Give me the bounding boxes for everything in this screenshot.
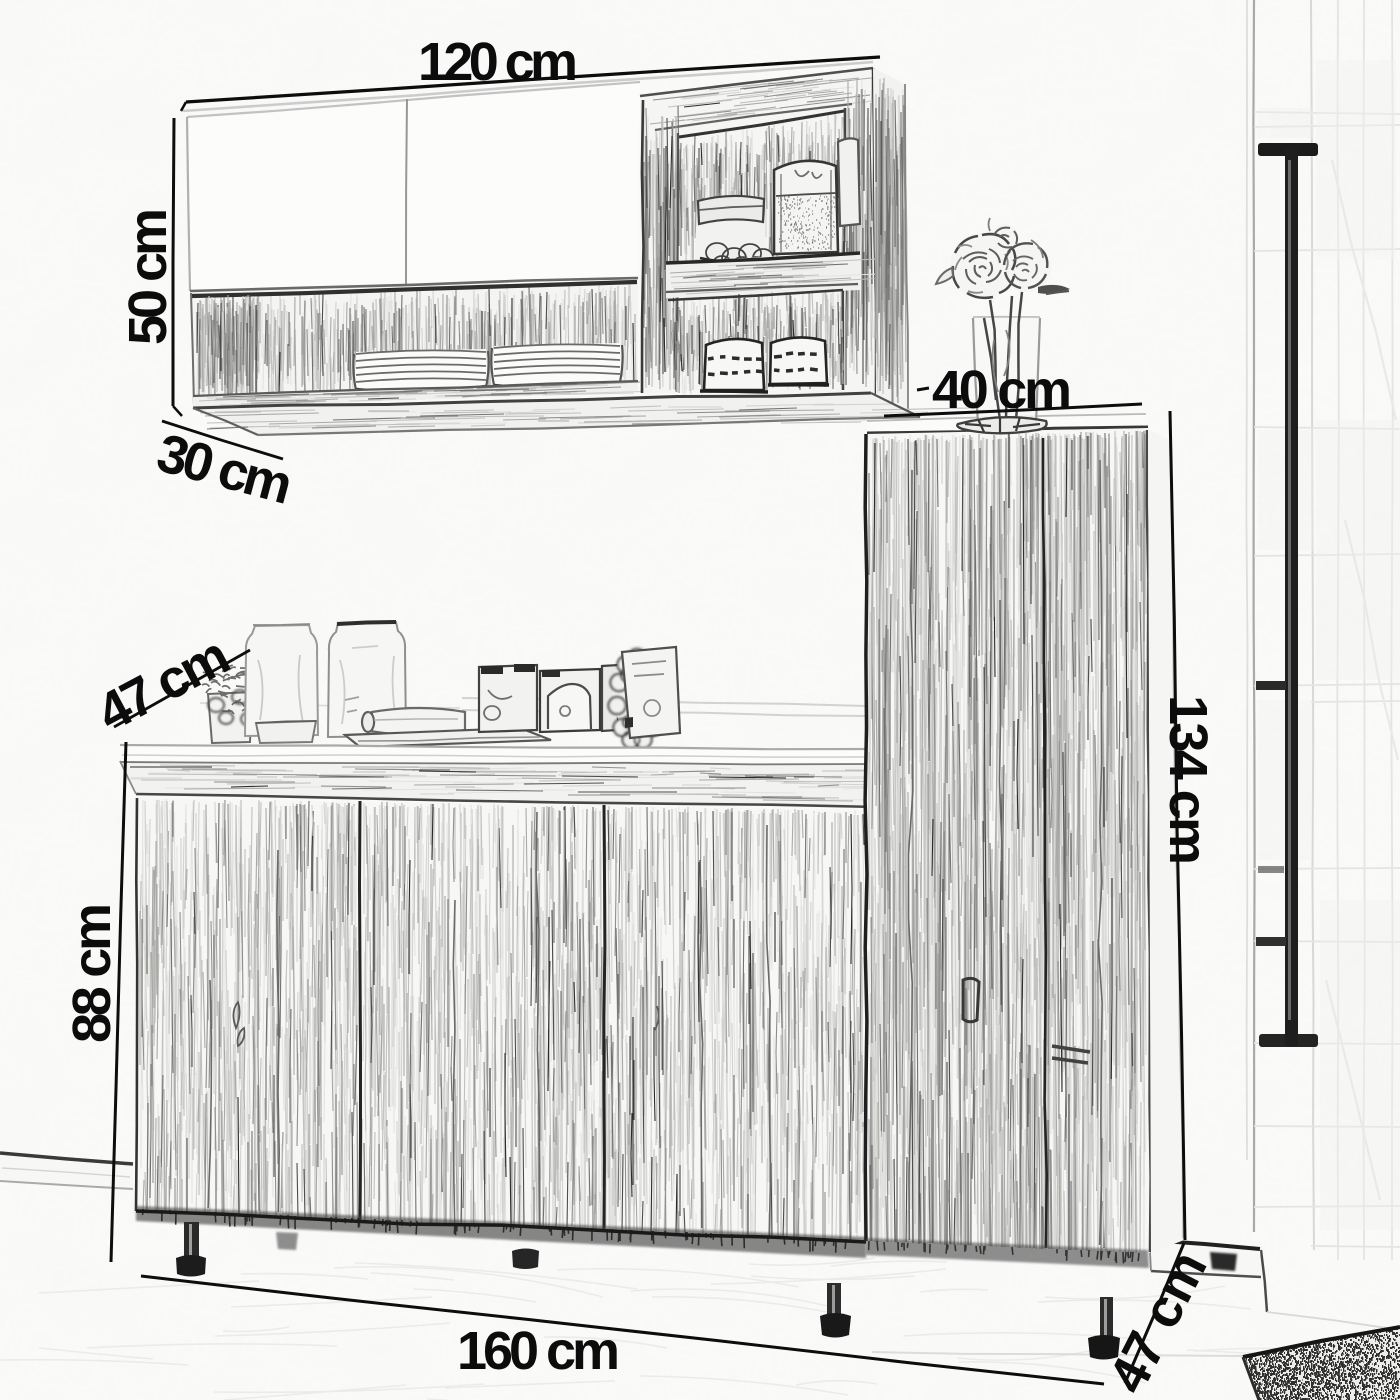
svg-text:120 cm: 120 cm	[418, 32, 578, 92]
svg-text:40 cm: 40 cm	[932, 360, 1072, 420]
svg-text:134 cm: 134 cm	[1158, 695, 1218, 865]
svg-text:50 cm: 50 cm	[118, 208, 178, 345]
svg-text:88 cm: 88 cm	[62, 903, 122, 1043]
svg-text:160 cm: 160 cm	[457, 1321, 620, 1381]
